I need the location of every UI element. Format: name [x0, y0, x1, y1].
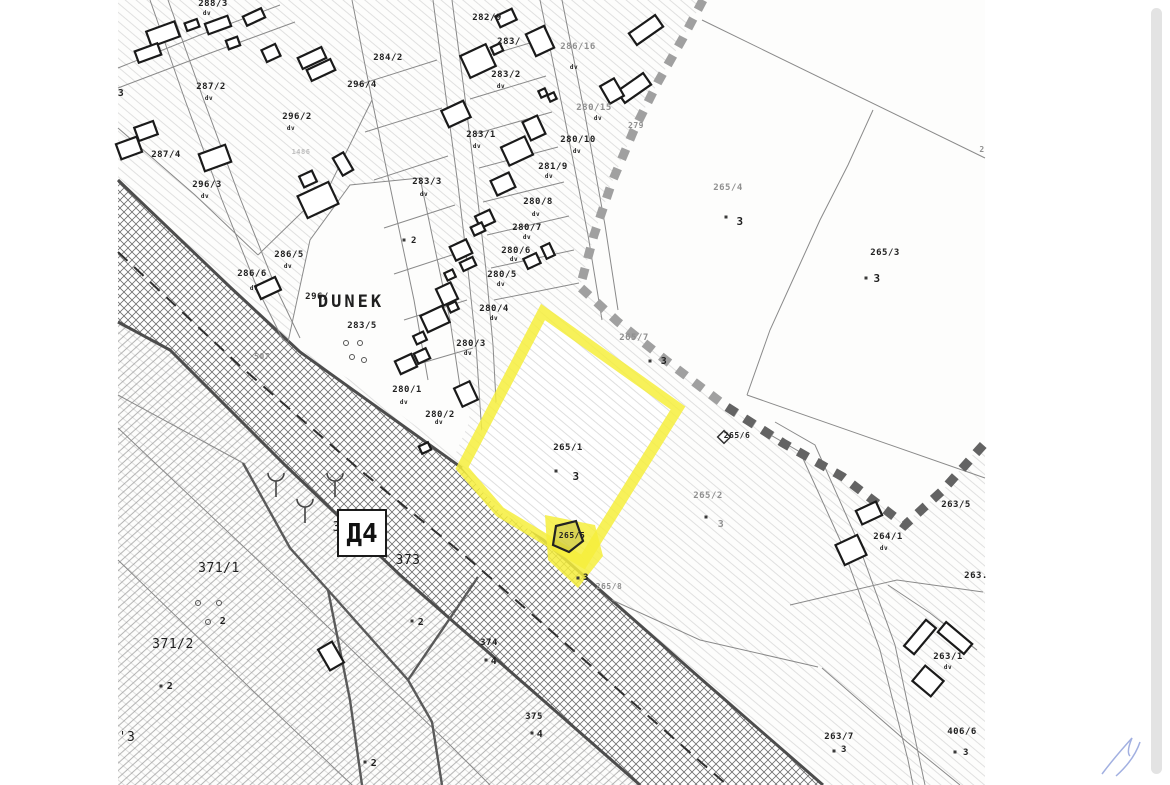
- parcel-label: 507: [254, 352, 270, 361]
- parcel-label: 2: [371, 758, 378, 769]
- parcel-label: 265/5: [559, 531, 586, 540]
- cadastral-map-scan: 288/3dv287/2dv287/4296/3dv296/2dv296/428…: [0, 0, 1170, 785]
- parcel-label: 284/2: [373, 53, 403, 63]
- land-class-marker: [411, 620, 414, 623]
- parcel-label: 2: [411, 236, 417, 246]
- pen-stroke: [1102, 738, 1132, 774]
- parcel-label: dv: [435, 419, 443, 426]
- parcel-label: 371/2: [152, 637, 194, 652]
- parcel-label: 2: [979, 145, 984, 154]
- pen-stroke: [1116, 742, 1140, 776]
- parcel-label: dv: [201, 193, 209, 200]
- parcel-label: 263/7: [824, 732, 854, 742]
- grid-ref-box: Д4: [338, 510, 386, 556]
- parcel-label: 283/: [497, 37, 521, 47]
- parcel-label: 296/2: [282, 112, 312, 122]
- parcel-label: 281/9: [538, 162, 568, 172]
- parcel-label: 280/15: [576, 103, 612, 113]
- building-footprint: [547, 92, 556, 101]
- parcel-label: dv: [880, 545, 888, 552]
- parcel-label: 3: [718, 519, 725, 530]
- parcel-label: 375: [525, 712, 543, 722]
- land-class-marker: [649, 360, 652, 363]
- land-class-marker: [531, 732, 534, 735]
- parcel-label: dv: [545, 173, 553, 180]
- parcel-label: 263/1: [933, 652, 963, 662]
- parcel-label: dv: [420, 191, 428, 198]
- parcel-label: dv: [203, 10, 211, 17]
- parcel-label: 3: [661, 356, 668, 367]
- parcel-label: 3: [583, 573, 589, 583]
- land-class-marker: [485, 659, 488, 662]
- parcel-label: 371/1: [198, 561, 240, 576]
- parcel-label: 2: [418, 617, 425, 628]
- parcel-label: dv: [594, 115, 602, 122]
- parcel-label: 263.: [964, 571, 988, 581]
- parcel-label: 265/8: [596, 582, 623, 591]
- parcel-label: dv: [284, 263, 292, 270]
- parcel-label: 2: [220, 616, 227, 627]
- land-class-marker: [403, 239, 406, 242]
- land-class-marker: [705, 516, 708, 519]
- parcel-label: 283/5: [347, 321, 377, 331]
- parcel-label: dv: [532, 211, 540, 218]
- parcel-label: 280/4: [479, 304, 509, 314]
- parcel-label: 287/2: [196, 82, 226, 92]
- pen-signature: [1102, 738, 1140, 776]
- parcel-label: 264/1: [873, 532, 903, 542]
- parcel-label: DUNEK: [318, 292, 384, 312]
- parcel-label: 283/1: [466, 130, 496, 140]
- parcel-label: 265/2: [693, 491, 723, 501]
- parcel-label: 3: [841, 745, 847, 755]
- parcel-label: 406/6: [947, 727, 977, 737]
- land-class-marker: [725, 216, 728, 219]
- grid-ref-label: Д4: [346, 519, 377, 549]
- parcel-label: 280/8: [523, 197, 553, 207]
- parcel-label: 3: [118, 88, 125, 99]
- scrollbar-thumb[interactable]: [1151, 8, 1162, 774]
- parcel-label: 286/5: [274, 250, 304, 260]
- parcel-label: dv: [205, 95, 213, 102]
- building-footprint: [538, 88, 547, 97]
- parcel-label: dv: [497, 83, 505, 90]
- land-class-marker: [833, 750, 836, 753]
- parcel-label: 280/5: [487, 270, 517, 280]
- land-class-marker: [577, 577, 580, 580]
- parcel-label: dv: [497, 281, 505, 288]
- parcel-label: 296/3: [192, 180, 222, 190]
- parcel-label: '3: [119, 730, 136, 745]
- parcel-label: 280/1: [392, 385, 422, 395]
- parcel-label: 3: [572, 470, 579, 483]
- parcel-label: 3: [736, 215, 743, 228]
- parcel-label: 280/10: [560, 135, 596, 145]
- parcel-label: 265/3: [870, 248, 900, 258]
- parcel-label: 373: [396, 553, 421, 568]
- parcel-label: dv: [573, 148, 581, 155]
- parcel-label: 286/6: [237, 269, 267, 279]
- parcel-label: dv: [523, 234, 531, 241]
- parcel-label: 265/7: [619, 333, 649, 343]
- parcel-label: dv: [400, 399, 408, 406]
- parcel-label: 283/2: [491, 70, 521, 80]
- parcel-label: 287/4: [151, 150, 181, 160]
- parcel-label: 3: [963, 748, 969, 758]
- parcel-label: 265/6: [724, 431, 751, 440]
- land-class-marker: [364, 761, 367, 764]
- parcel-label: dv: [287, 125, 295, 132]
- parcel-label: 265/1: [553, 443, 583, 453]
- document-viewer: 288/3dv287/2dv287/4296/3dv296/2dv296/428…: [0, 0, 1170, 785]
- parcel-label: dv: [490, 315, 498, 322]
- parcel-label: 296/4: [347, 80, 377, 90]
- parcel-label: dv: [473, 143, 481, 150]
- parcel-label: 280/3: [456, 339, 486, 349]
- land-class-marker: [160, 685, 163, 688]
- parcel-label: 283/3: [412, 177, 442, 187]
- parcel-label: dv: [464, 350, 472, 357]
- parcel-label: 279: [628, 121, 644, 130]
- parcel-label: dv: [570, 64, 578, 71]
- parcel-label: 280/6: [501, 246, 531, 256]
- land-class-marker: [555, 470, 558, 473]
- land-class-marker: [954, 751, 957, 754]
- parcel-label: dv: [944, 664, 952, 671]
- parcel-label: 4: [491, 656, 498, 667]
- parcel-label: 263/5: [941, 500, 971, 510]
- parcel-label: 2: [167, 681, 174, 692]
- parcel-label: 265/4: [713, 183, 743, 193]
- land-class-marker: [865, 277, 868, 280]
- parcel-label: dv: [510, 256, 518, 263]
- parcel-label: 3: [873, 272, 880, 285]
- parcel-label: dv: [250, 285, 258, 292]
- parcel-label: 1486: [292, 148, 311, 156]
- parcel-label: 280/7: [512, 223, 542, 233]
- parcel-label: 288/3: [198, 0, 228, 9]
- parcel-label: 286/16: [560, 42, 596, 52]
- parcel-label: 4: [537, 729, 544, 740]
- parcel-label: 374: [480, 638, 498, 648]
- parcel-label: 282/9: [472, 13, 502, 23]
